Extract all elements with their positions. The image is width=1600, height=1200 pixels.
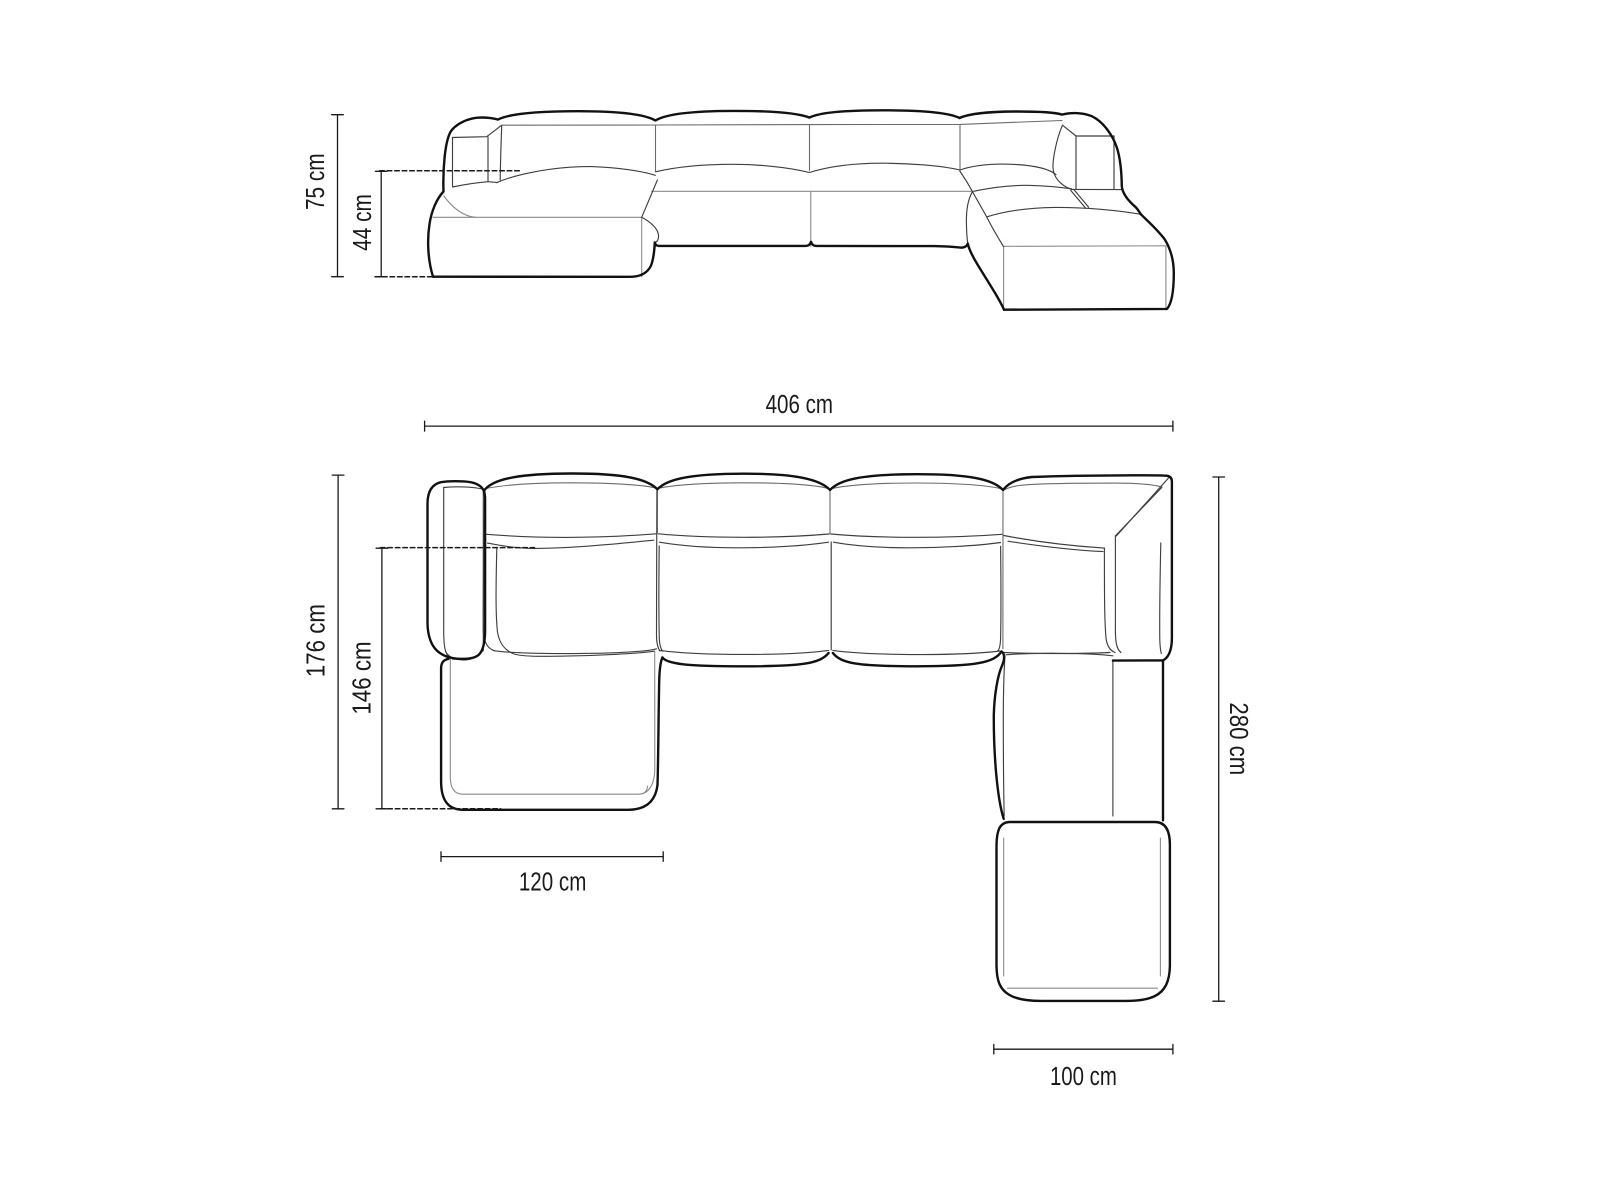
svg-text:406 cm: 406 cm bbox=[766, 391, 833, 419]
svg-text:146 cm: 146 cm bbox=[348, 641, 376, 714]
svg-text:120 cm: 120 cm bbox=[519, 868, 587, 896]
svg-text:100 cm: 100 cm bbox=[1050, 1063, 1117, 1091]
svg-text:75 cm: 75 cm bbox=[302, 153, 330, 210]
svg-text:176 cm: 176 cm bbox=[303, 604, 331, 677]
svg-text:44 cm: 44 cm bbox=[349, 194, 377, 251]
svg-text:280 cm: 280 cm bbox=[1224, 702, 1252, 775]
